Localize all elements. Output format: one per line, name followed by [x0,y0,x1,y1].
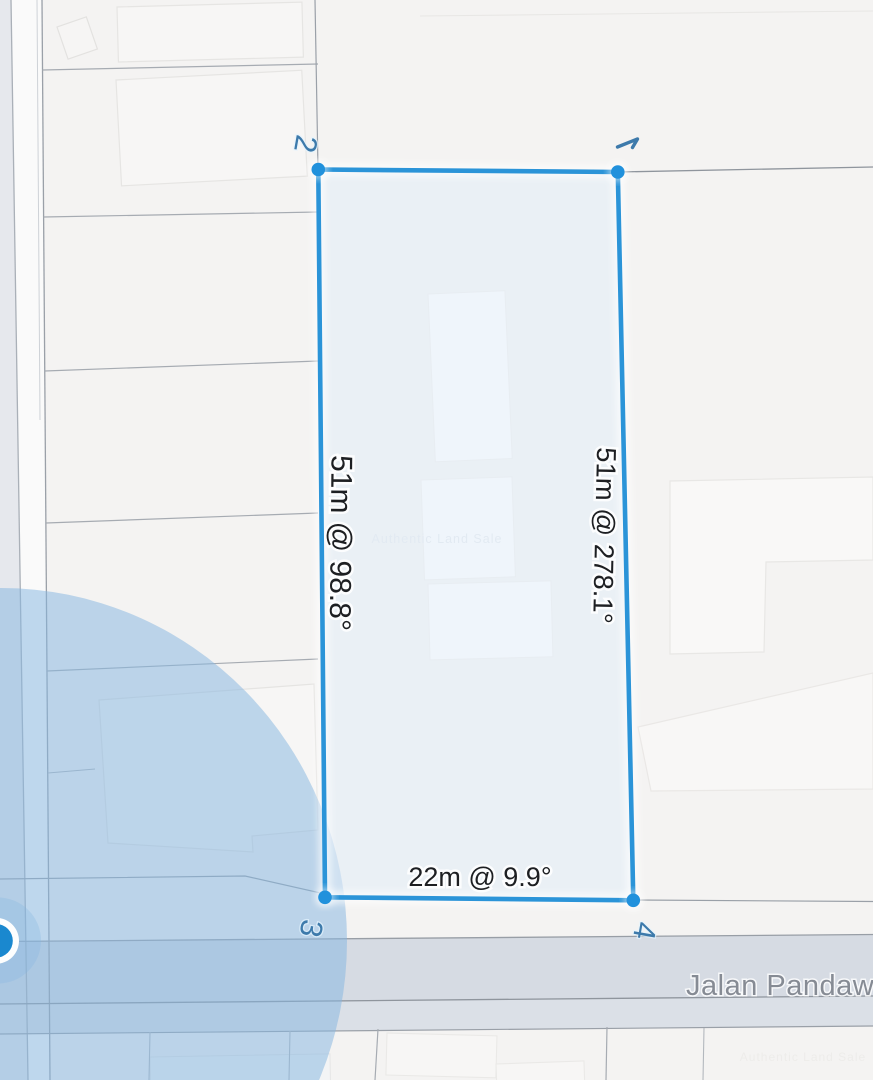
svg-text:Authentic Land Sale: Authentic Land Sale [740,1050,866,1064]
svg-text:22m @ 9.9°: 22m @ 9.9° [408,862,551,892]
svg-text:51m @ 98.8°: 51m @ 98.8° [323,455,358,631]
svg-text:Jalan Pandawa: Jalan Pandawa [686,970,873,1002]
svg-text:51m @ 278.1°: 51m @ 278.1° [587,447,622,624]
